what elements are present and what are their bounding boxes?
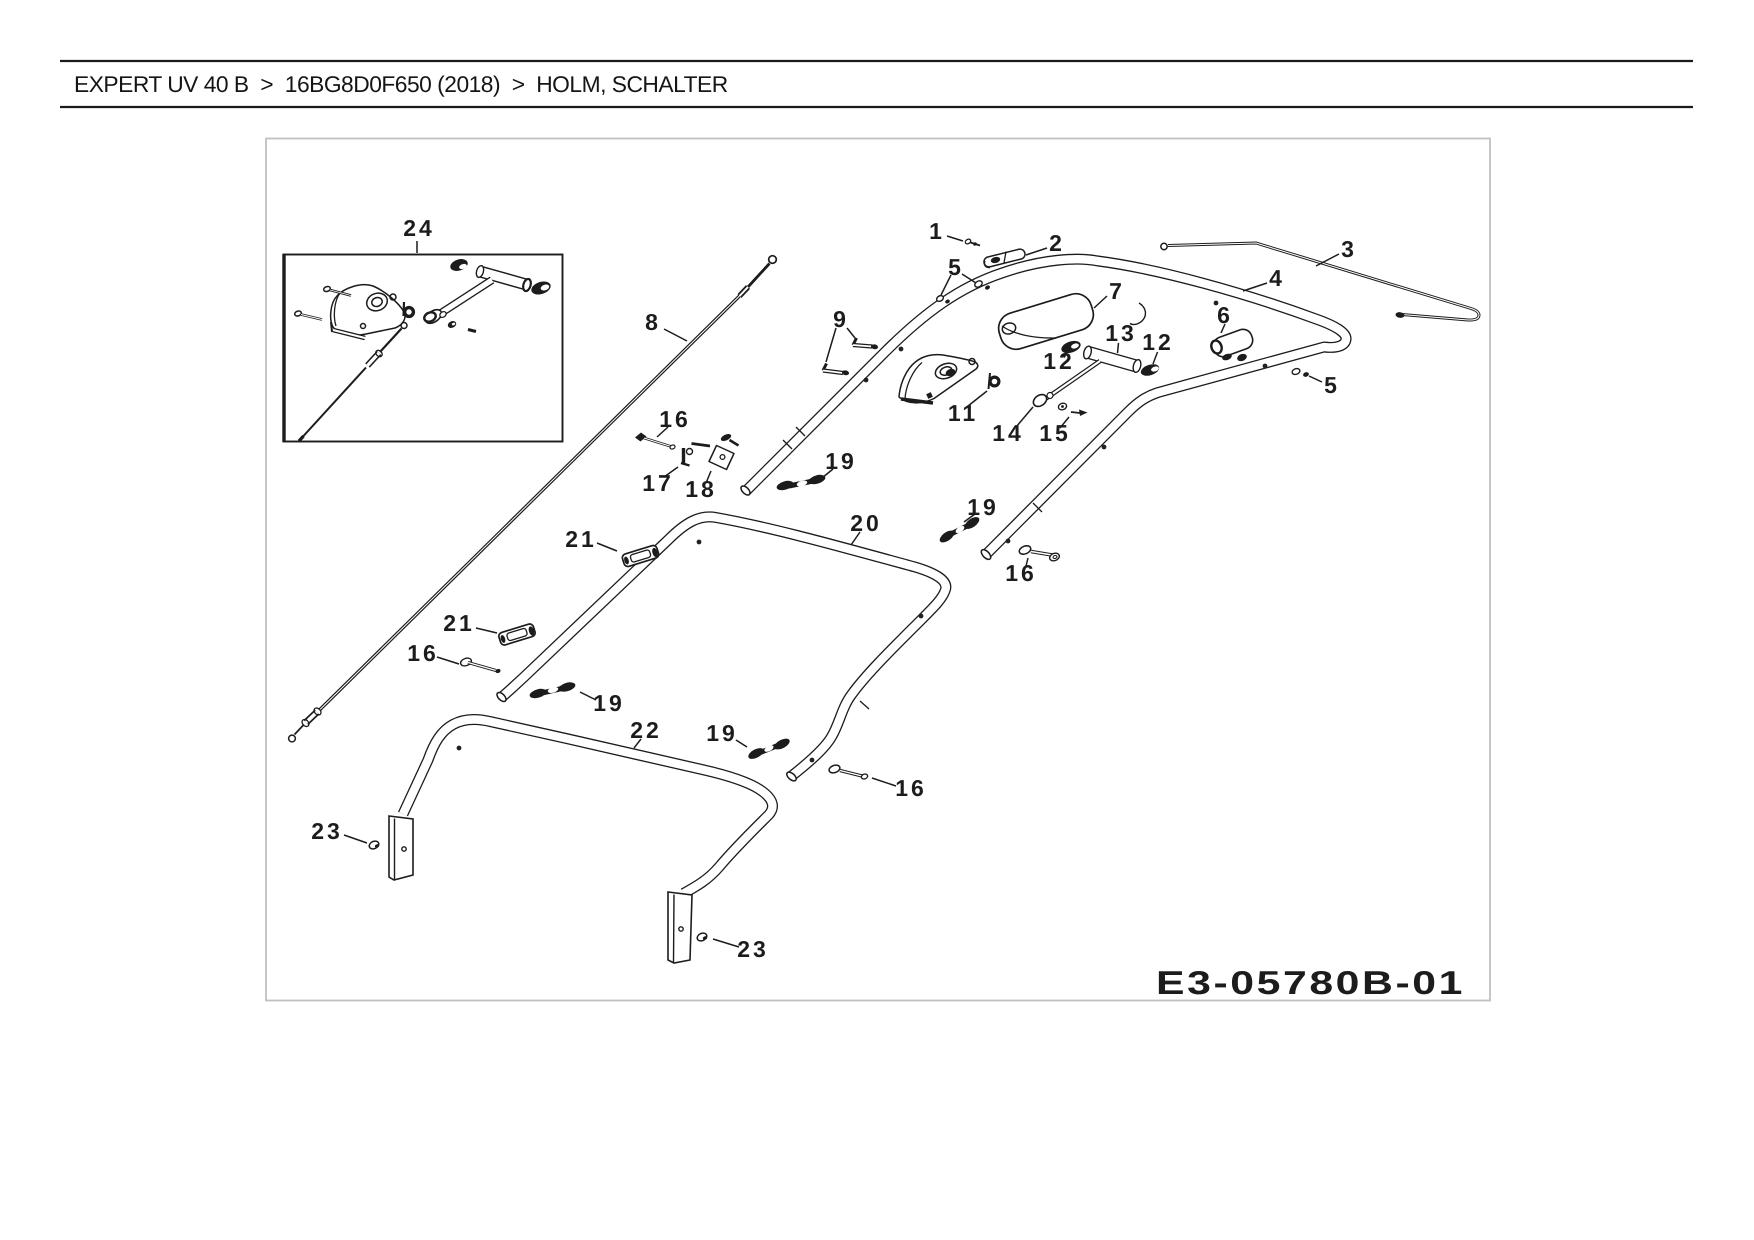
svg-text:16: 16: [659, 406, 691, 432]
svg-text:5: 5: [1324, 372, 1340, 398]
svg-text:3: 3: [1341, 236, 1357, 262]
svg-text:21: 21: [565, 526, 597, 552]
svg-text:19: 19: [706, 720, 738, 746]
svg-text:21: 21: [443, 610, 475, 636]
svg-text:16: 16: [1005, 560, 1037, 586]
svg-text:9: 9: [833, 306, 849, 332]
svg-text:11: 11: [948, 400, 978, 426]
svg-text:18: 18: [685, 476, 717, 502]
svg-text:5: 5: [948, 254, 964, 280]
svg-text:16: 16: [895, 775, 927, 801]
svg-text:4: 4: [1269, 265, 1285, 291]
svg-text:12: 12: [1043, 348, 1075, 374]
svg-text:20: 20: [850, 510, 882, 536]
svg-text:16: 16: [407, 640, 439, 666]
svg-text:14: 14: [992, 420, 1024, 446]
svg-text:E3-05780B-01: E3-05780B-01: [1156, 964, 1465, 1001]
svg-text:19: 19: [967, 494, 999, 520]
svg-text:19: 19: [593, 690, 625, 716]
svg-text:12: 12: [1142, 329, 1174, 355]
svg-text:23: 23: [737, 936, 769, 962]
svg-text:EXPERT UV 40 B > 16BG8D0F650: EXPERT UV 40 B > 16BG8D0F650 (2018) > HO…: [74, 71, 728, 97]
svg-text:17: 17: [642, 470, 674, 496]
svg-text:7: 7: [1109, 278, 1125, 304]
svg-text:23: 23: [311, 818, 343, 844]
svg-text:13: 13: [1105, 320, 1137, 346]
svg-text:15: 15: [1039, 420, 1071, 446]
svg-text:19: 19: [825, 448, 857, 474]
svg-text:2: 2: [1049, 230, 1065, 256]
svg-text:8: 8: [645, 309, 661, 335]
svg-text:24: 24: [403, 215, 435, 241]
svg-text:22: 22: [630, 717, 662, 743]
svg-text:6: 6: [1217, 302, 1233, 328]
svg-text:1: 1: [929, 218, 945, 244]
